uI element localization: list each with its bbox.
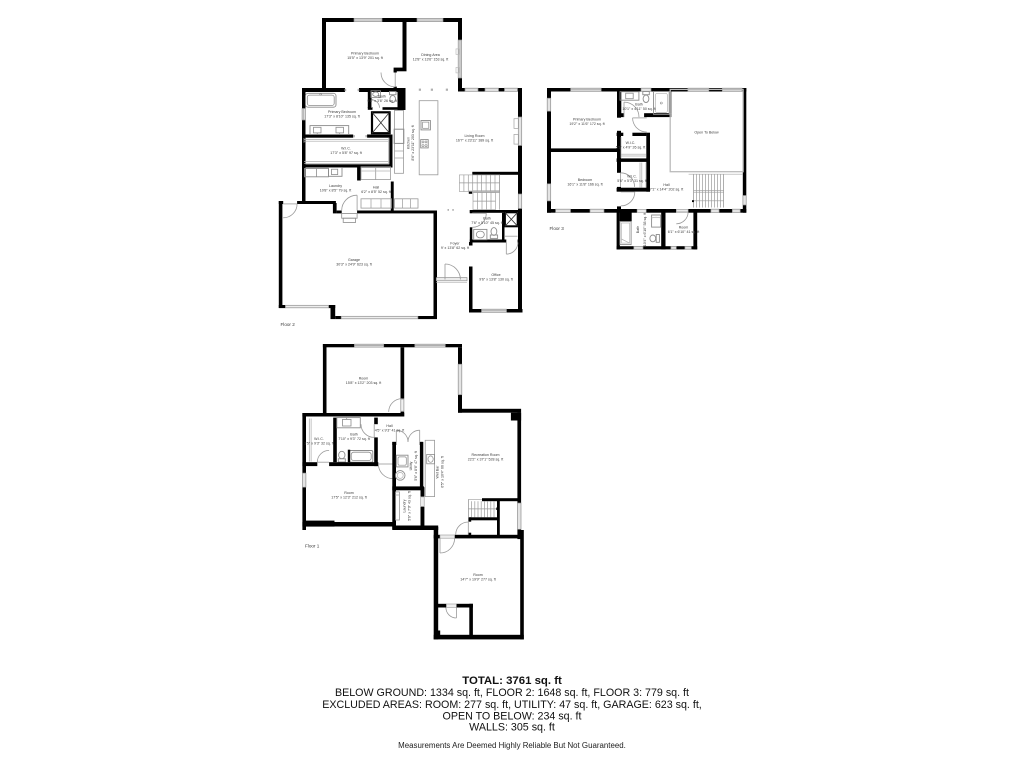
svg-text:Recreation Room22'2" x 37'1" 5: Recreation Room22'2" x 37'1" 528 sq. ft [468, 453, 504, 462]
svg-text:Floor 2: Floor 2 [281, 322, 296, 327]
svg-text:Wet Bar: Wet Bar [436, 465, 440, 479]
svg-text:5'6" x 8'6" 47 sq. ft: 5'6" x 8'6" 47 sq. ft [414, 451, 418, 481]
svg-text:EXCLUDED AREAS: ROOM: 277 sq.: EXCLUDED AREAS: ROOM: 277 sq. ft, UTILIT… [322, 699, 702, 711]
svg-text:Measurements Are Deemed Highly: Measurements Are Deemed Highly Reliable … [398, 741, 626, 750]
svg-text:BELOW GROUND: 1334 sq. ft, FLO: BELOW GROUND: 1334 sq. ft, FLOOR 2: 1648… [335, 687, 689, 699]
svg-text:Primary Bedroom15'5" x 13'9" 2: Primary Bedroom15'5" x 13'9" 201 sq. ft [347, 52, 383, 61]
svg-text:Bath: Bath [636, 226, 640, 233]
svg-text:TOTAL: 3761 sq. ft: TOTAL: 3761 sq. ft [462, 675, 562, 687]
svg-text:Floor 3: Floor 3 [550, 226, 565, 231]
svg-text:WALLS: 305 sq. ft: WALLS: 305 sq. ft [469, 722, 555, 734]
svg-text:Primary Bedroom17'3" x 8'10" 1: Primary Bedroom17'3" x 8'10" 135 sq. ft [324, 110, 360, 119]
svg-text:5'6" x 7'9" 43 sq. ft: 5'6" x 7'9" 43 sq. ft [408, 491, 412, 521]
svg-text:6'5" x 10'4" 66 sq. ft: 6'5" x 10'4" 66 sq. ft [441, 456, 445, 488]
svg-text:Primary Bedroom19'2" x 11'6" 1: Primary Bedroom19'2" x 11'6" 172 sq. ft [569, 118, 604, 127]
svg-text:Laundry: Laundry [403, 499, 407, 512]
svg-text:Open To Below: Open To Below [694, 131, 719, 135]
svg-text:Floor 1: Floor 1 [305, 544, 320, 549]
svg-text:Utility: Utility [409, 461, 413, 470]
svg-text:10'4" x 6'10" 58 sq. ft: 10'4" x 6'10" 58 sq. ft [643, 213, 647, 247]
